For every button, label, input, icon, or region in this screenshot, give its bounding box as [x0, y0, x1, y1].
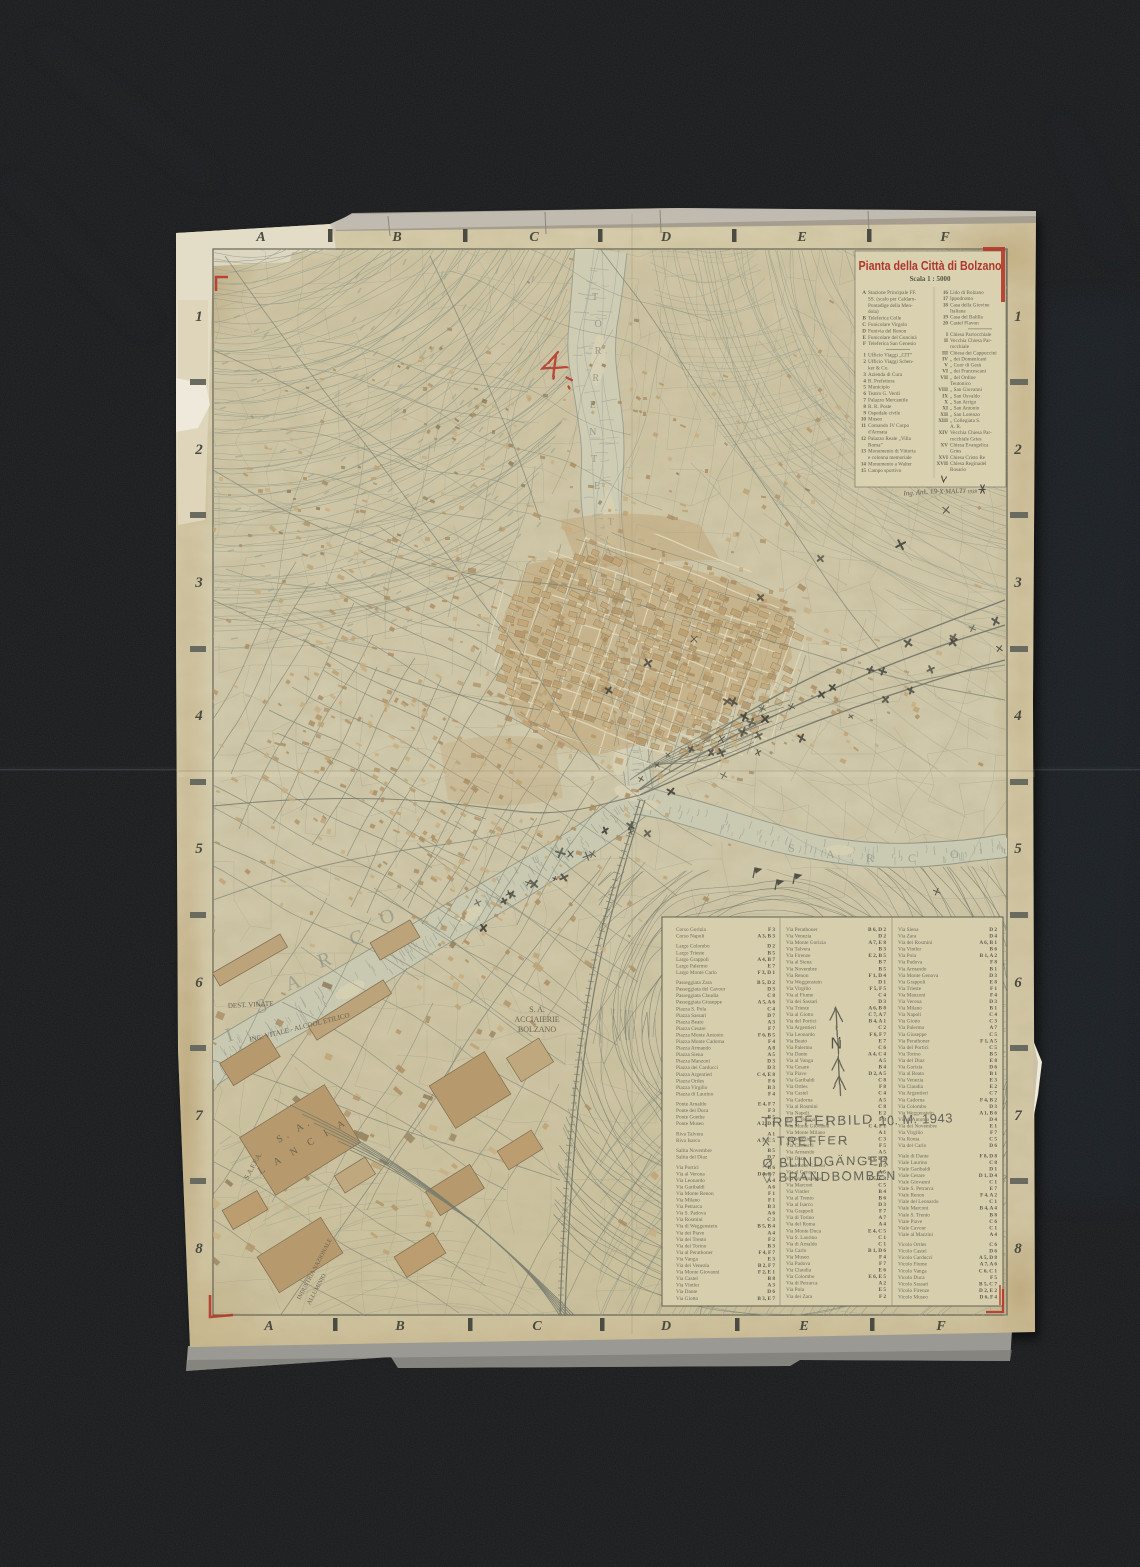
- svg-text:D 3: D 3: [878, 1202, 886, 1208]
- svg-text:Via Monte Renon: Via Monte Renon: [676, 1191, 714, 1197]
- svg-text:B: B: [391, 230, 401, 245]
- svg-text:XIV: XIV: [938, 430, 948, 436]
- svg-text:Via Trieste: Via Trieste: [898, 986, 922, 992]
- svg-text:C 3: C 3: [767, 1217, 775, 1223]
- svg-text:F 1: F 1: [768, 1191, 775, 1197]
- svg-text:F 2: F 2: [768, 1237, 775, 1243]
- svg-text:Via Vintler: Via Vintler: [898, 947, 921, 953]
- svg-text:Viale Laurino: Viale Laurino: [898, 1160, 928, 1166]
- svg-text:Piazza Monte Antonio: Piazza Monte Antonio: [676, 1033, 724, 1039]
- svg-text:D 4: D 4: [989, 1117, 997, 1123]
- svg-text:8: 8: [1014, 1241, 1022, 1257]
- svg-text:B 4, A 1: B 4, A 1: [869, 1019, 887, 1025]
- svg-text:10: 10: [861, 417, 867, 423]
- svg-text:C 4: C 4: [878, 993, 886, 999]
- svg-text:B 4: B 4: [878, 1065, 886, 1071]
- svg-text:Via al Perathoner: Via al Perathoner: [676, 1250, 713, 1256]
- svg-text:B 3: B 3: [878, 947, 886, 953]
- svg-text:Chiesa Evangelica: Chiesa Evangelica: [950, 443, 989, 449]
- svg-text:Via dei Piave: Via dei Piave: [676, 1230, 705, 1236]
- svg-text:Chiesa Parrocchiale: Chiesa Parrocchiale: [950, 332, 992, 338]
- svg-text:A 7, E 8: A 7, E 8: [868, 940, 886, 946]
- svg-text:„ dei Francescani: „ dei Francescani: [950, 369, 987, 375]
- svg-text:B 5: B 5: [767, 1148, 775, 1154]
- svg-text:Via dei Sassari: Via dei Sassari: [786, 999, 818, 1005]
- svg-text:F 3, D 1: F 3, D 1: [758, 970, 776, 976]
- svg-text:F 7: F 7: [879, 1261, 886, 1267]
- svg-text:Via Venezia: Via Venezia: [786, 934, 812, 940]
- svg-text:Via Torino: Via Torino: [898, 1051, 921, 1057]
- svg-text:F 1, A 5: F 1, A 5: [980, 1038, 997, 1044]
- svg-text:B: B: [863, 316, 867, 322]
- svg-text:„ San Lorenzo: „ San Lorenzo: [950, 412, 980, 418]
- svg-text:D 3: D 3: [767, 987, 775, 993]
- svg-text:E: E: [796, 230, 806, 245]
- svg-text:Via Argentieri: Via Argentieri: [898, 1091, 929, 1097]
- svg-text:Italiana: Italiana: [950, 308, 966, 314]
- svg-text:F 1: F 1: [768, 1198, 775, 1204]
- svg-text:Vicolo Museo: Vicolo Museo: [898, 1295, 928, 1301]
- svg-text:E 8: E 8: [989, 979, 997, 985]
- svg-text:B 7: B 7: [878, 960, 886, 966]
- svg-text:B: B: [394, 1319, 404, 1334]
- svg-text:1: 1: [1014, 309, 1022, 325]
- svg-text:A 6: A 6: [767, 1184, 775, 1190]
- svg-text:C 5: C 5: [878, 1182, 886, 1188]
- svg-text:Casa della Giovine: Casa della Giovine: [950, 302, 990, 308]
- svg-text:14: 14: [861, 462, 867, 468]
- svg-text:E 7: E 7: [767, 963, 775, 969]
- svg-text:Via di Petrarca: Via di Petrarca: [786, 1281, 818, 1287]
- svg-text:Via Rosmini: Via Rosmini: [676, 1217, 703, 1223]
- svg-text:Via Monte Genova: Via Monte Genova: [898, 973, 939, 979]
- svg-text:Via dei Trento: Via dei Trento: [676, 1237, 707, 1243]
- svg-text:T: T: [592, 292, 598, 303]
- svg-text:Piazza Virgilio: Piazza Virgilio: [676, 1085, 708, 1091]
- svg-text:Funicolare del Guncinà: Funicolare del Guncinà: [868, 335, 917, 341]
- svg-text:C 5: C 5: [989, 1032, 997, 1038]
- svg-text:9: 9: [863, 410, 866, 416]
- svg-text:Viale Cavour: Viale Cavour: [898, 1225, 926, 1231]
- svg-text:Via Grappoli: Via Grappoli: [786, 1209, 814, 1215]
- svg-text:D 1: D 1: [878, 979, 886, 985]
- svg-text:Palazzo Reale „Villa: Palazzo Reale „Villa: [868, 436, 912, 442]
- svg-text:F 4, A 2: F 4, A 2: [980, 1193, 997, 1199]
- svg-text:2: 2: [863, 359, 866, 365]
- svg-text:A: A: [255, 230, 265, 245]
- svg-text:E: E: [594, 481, 600, 492]
- svg-text:D 2, A 5: D 2, A 5: [868, 1071, 886, 1077]
- svg-text:E 6: E 6: [878, 1268, 886, 1274]
- svg-text:Via al Vanga: Via al Vanga: [786, 1058, 814, 1064]
- svg-text:F 7: F 7: [990, 1130, 997, 1136]
- svg-text:B 3, E 7: B 3, E 7: [757, 1296, 775, 1302]
- svg-text:Vicolo Sassari: Vicolo Sassari: [898, 1281, 929, 1287]
- svg-text:Viale al Mazzini: Viale al Mazzini: [898, 1232, 934, 1238]
- svg-text:Via Leonardo: Via Leonardo: [676, 1178, 705, 1184]
- svg-text:E 3: E 3: [767, 1257, 775, 1263]
- svg-text:T: T: [591, 454, 597, 465]
- svg-text:Piazza Beato: Piazza Beato: [676, 1019, 704, 1025]
- svg-text:Ponte Museo: Ponte Museo: [676, 1121, 704, 1127]
- svg-text:7: 7: [1014, 1108, 1022, 1124]
- svg-text:Via del Torino: Via del Torino: [676, 1243, 707, 1249]
- svg-text:B 6: B 6: [989, 947, 997, 953]
- svg-text:6: 6: [863, 391, 866, 397]
- svg-text:BOLZANO: BOLZANO: [518, 1025, 556, 1034]
- svg-text:B 2, F 7: B 2, F 7: [758, 1263, 776, 1269]
- svg-text:IV: IV: [942, 356, 948, 362]
- svg-text:II: II: [944, 338, 948, 344]
- svg-text:Via S. Padova: Via S. Padova: [676, 1211, 706, 1217]
- svg-text:R: R: [866, 851, 874, 865]
- svg-text:A 1, B 6: A 1, B 6: [979, 1110, 997, 1116]
- svg-text:B 1: B 1: [989, 1071, 997, 1077]
- svg-text:Via Leonardo: Via Leonardo: [786, 1032, 815, 1038]
- svg-text:Funicolare Virgolo: Funicolare Virgolo: [868, 322, 908, 328]
- svg-text:E 4, C 5: E 4, C 5: [868, 1228, 886, 1234]
- svg-text:A 6, B 8: A 6, B 8: [868, 1006, 886, 1012]
- svg-text:Vicolo Fiume: Vicolo Fiume: [898, 1262, 928, 1268]
- svg-text:Via Trieste: Via Trieste: [786, 1006, 810, 1012]
- svg-text:I: I: [946, 332, 948, 338]
- svg-text:Palazzo Mercantile: Palazzo Mercantile: [868, 398, 909, 404]
- svg-text:F 5, F 5: F 5, F 5: [869, 986, 886, 992]
- svg-text:Via Garibaldi: Via Garibaldi: [786, 1078, 815, 1084]
- svg-text:D: D: [862, 328, 866, 334]
- svg-text:Via del Diaz: Via del Diaz: [898, 1058, 925, 1064]
- svg-text:Viale S. Trento: Viale S. Trento: [898, 1212, 930, 1218]
- svg-text:III: III: [942, 350, 948, 356]
- svg-text:Via Beato: Via Beato: [786, 1038, 807, 1044]
- svg-text:Via Virgilio: Via Virgilio: [786, 986, 811, 992]
- svg-text:1: 1: [195, 309, 203, 325]
- svg-text:B 8: B 8: [767, 1276, 775, 1282]
- svg-text:E 2, B 5: E 2, B 5: [868, 953, 886, 959]
- svg-text:„ Cuor di Gesù: „ Cuor di Gesù: [950, 363, 982, 369]
- svg-text:6: 6: [195, 975, 203, 991]
- svg-text:C 1: C 1: [989, 1225, 997, 1231]
- svg-text:Via del Roma: Via del Roma: [786, 1222, 816, 1228]
- svg-text:Piazza Manzoni: Piazza Manzoni: [676, 1059, 711, 1065]
- svg-text:A 5: A 5: [767, 1052, 775, 1058]
- svg-text:C 5: C 5: [989, 1137, 997, 1143]
- svg-text:Largo Grappoli: Largo Grappoli: [676, 957, 709, 963]
- svg-text:C 3: C 3: [878, 1137, 886, 1143]
- svg-text:VIII: VIII: [938, 387, 948, 393]
- svg-text:Ufficio Viaggi „CIT”: Ufficio Viaggi „CIT”: [868, 352, 913, 359]
- svg-text:C 6: C 6: [989, 1219, 997, 1225]
- svg-text:B 4: B 4: [878, 1189, 886, 1195]
- svg-text:Largo Colombo: Largo Colombo: [676, 944, 710, 950]
- svg-text:Vicolo Ortles: Vicolo Ortles: [898, 1242, 926, 1248]
- svg-text:Via al Fiume: Via al Fiume: [786, 993, 814, 999]
- svg-text:S. A.: S. A.: [529, 1005, 545, 1014]
- svg-text:D: D: [660, 1319, 671, 1334]
- svg-text:Salita del Diaz: Salita del Diaz: [676, 1155, 708, 1161]
- svg-text:Via al Isarco: Via al Isarco: [786, 1202, 813, 1208]
- svg-text:D 1, D 4: D 1, D 4: [979, 1173, 998, 1179]
- svg-text:A 4: A 4: [767, 1230, 775, 1236]
- svg-text:C 7, A 7: C 7, A 7: [868, 1012, 886, 1018]
- svg-text:C: C: [529, 230, 539, 245]
- svg-text:C 1: C 1: [989, 1199, 997, 1205]
- svg-text:ker & Co.: ker & Co.: [868, 366, 889, 372]
- svg-text:Viale Garibaldi: Viale Garibaldi: [898, 1166, 931, 1172]
- svg-text:Monumento di Vittoria: Monumento di Vittoria: [868, 449, 916, 455]
- svg-text:Via Pola: Via Pola: [898, 953, 917, 959]
- svg-text:Via Manzoni: Via Manzoni: [898, 993, 926, 999]
- svg-text:Museo: Museo: [868, 417, 883, 423]
- svg-text:Via dei Zara: Via dei Zara: [786, 1294, 813, 1300]
- svg-text:D 6: D 6: [767, 1289, 775, 1295]
- svg-text:Via Museo: Via Museo: [786, 1255, 809, 1261]
- svg-text:C: C: [862, 322, 866, 328]
- svg-text:Viale Renon: Viale Renon: [898, 1193, 925, 1199]
- svg-text:D 3: D 3: [989, 1104, 997, 1110]
- svg-text:B 3: B 3: [767, 1085, 775, 1091]
- svg-text:„ San Antonio: „ San Antonio: [950, 406, 980, 412]
- svg-text:Via Vintler: Via Vintler: [786, 1189, 809, 1195]
- svg-text:E: E: [863, 335, 867, 341]
- svg-text:Viale Piave: Viale Piave: [898, 1219, 923, 1225]
- svg-text:B 5: B 5: [878, 966, 886, 972]
- svg-text:Largo Trieste: Largo Trieste: [676, 950, 705, 956]
- svg-text:Via Grappoli: Via Grappoli: [898, 979, 926, 985]
- svg-text:Vicolo Carducci: Vicolo Carducci: [898, 1255, 933, 1261]
- svg-text:R: R: [592, 373, 599, 384]
- svg-text:Via Giuseppe: Via Giuseppe: [898, 1032, 927, 1038]
- svg-text:Riva Isarco: Riva Isarco: [676, 1138, 701, 1144]
- svg-text:D: D: [660, 230, 671, 245]
- svg-text:6: 6: [1014, 975, 1022, 991]
- svg-text:A: A: [862, 290, 866, 296]
- svg-text:Ospedale civile: Ospedale civile: [868, 410, 901, 416]
- svg-text:Viale di Dante: Viale di Dante: [898, 1153, 929, 1159]
- svg-text:B 5: B 5: [767, 950, 775, 956]
- svg-text:Via Napoli: Via Napoli: [898, 1012, 922, 1018]
- svg-text:Ponte Goethe: Ponte Goethe: [676, 1115, 705, 1121]
- svg-text:Via del Portici: Via del Portici: [786, 1019, 817, 1025]
- svg-text:Via Piave: Via Piave: [786, 1071, 807, 1077]
- svg-text:C 2: C 2: [878, 1025, 886, 1031]
- svg-text:A 4, B 7: A 4, B 7: [757, 957, 775, 963]
- svg-text:XIII: XIII: [938, 418, 948, 424]
- svg-text:20: 20: [943, 321, 949, 327]
- svg-text:D 3: D 3: [989, 973, 997, 979]
- svg-text:E 1: E 1: [989, 1124, 997, 1130]
- svg-text:C 8: C 8: [989, 1160, 997, 1166]
- svg-text:D 2: D 2: [989, 927, 997, 933]
- svg-text:15: 15: [861, 468, 867, 474]
- svg-text:A 3, B 3: A 3, B 3: [757, 934, 775, 940]
- svg-text:B 5, C 7: B 5, C 7: [979, 1281, 997, 1287]
- svg-text:Ponte dei Duca: Ponte dei Duca: [676, 1108, 709, 1114]
- svg-text:B 1, D 6: B 1, D 6: [868, 1248, 886, 1254]
- svg-text:Via Claudia: Via Claudia: [898, 1084, 924, 1090]
- svg-text:Vicolo Firenze: Vicolo Firenze: [898, 1288, 930, 1294]
- svg-text:X: X: [944, 400, 948, 406]
- svg-text:F 4, F 7: F 4, F 7: [758, 1250, 775, 1256]
- svg-text:F: F: [939, 230, 950, 245]
- svg-text:Via del Carlo: Via del Carlo: [898, 1143, 927, 1149]
- svg-text:Via al Verona: Via al Verona: [676, 1171, 705, 1177]
- svg-text:Teleferica Colle: Teleferica Colle: [868, 315, 902, 322]
- svg-text:VII: VII: [940, 375, 948, 381]
- svg-text:D 6: D 6: [989, 1065, 997, 1071]
- svg-text:Monumento a Walter: Monumento a Walter: [868, 462, 912, 468]
- svg-text:Via Firenze: Via Firenze: [786, 953, 811, 959]
- svg-text:C 4: C 4: [767, 1006, 775, 1012]
- svg-text:8: 8: [195, 1241, 203, 1257]
- svg-text:E: E: [798, 1319, 808, 1334]
- svg-text:D 6: D 6: [989, 1249, 997, 1255]
- svg-text:„ del Ordine: „ del Ordine: [950, 375, 976, 381]
- svg-text:Azienda di Cura: Azienda di Cura: [868, 372, 903, 378]
- svg-text:Chiesa Reginadel: Chiesa Reginadel: [950, 461, 987, 467]
- svg-text:7: 7: [863, 398, 866, 404]
- svg-text:D 3: D 3: [878, 999, 886, 1005]
- svg-text:Piazza Armando: Piazza Armando: [676, 1046, 711, 1052]
- svg-text:A. R.: A. R.: [950, 424, 961, 430]
- svg-text:Via Colombo: Via Colombo: [786, 1274, 815, 1280]
- svg-text:XII: XII: [940, 412, 948, 418]
- svg-text:A 4: A 4: [989, 1232, 997, 1238]
- svg-text:Vicolo Vanga: Vicolo Vanga: [898, 1268, 927, 1274]
- svg-text:A 6, B 1: A 6, B 1: [979, 940, 997, 946]
- svg-text:N: N: [830, 1035, 842, 1052]
- svg-text:XI: XI: [942, 406, 948, 412]
- svg-text:D 2: D 2: [767, 944, 775, 950]
- svg-text:C 4: C 4: [989, 1012, 997, 1018]
- svg-text:B 1, A 2: B 1, A 2: [980, 953, 998, 959]
- svg-text:Castel Flavon: Castel Flavon: [950, 321, 979, 327]
- svg-text:Via Monte Giovanni: Via Monte Giovanni: [676, 1270, 720, 1276]
- svg-text:F 8: F 8: [879, 1084, 886, 1090]
- svg-text:Stazione Principale FF.: Stazione Principale FF.: [868, 290, 916, 296]
- svg-text:Lido di Bolzano: Lido di Bolzano: [950, 290, 984, 296]
- svg-text:Via Padova: Via Padova: [898, 960, 923, 966]
- svg-text:Via Argentieri: Via Argentieri: [786, 1025, 817, 1031]
- svg-text:▽ BRANDBOMBEN: ▽ BRANDBOMBEN: [762, 1168, 897, 1185]
- svg-text:SS. (scalo per Caldaro-: SS. (scalo per Caldaro-: [868, 295, 916, 302]
- svg-text:Largo Palermo: Largo Palermo: [676, 963, 708, 969]
- svg-text:C 8: C 8: [878, 1104, 886, 1110]
- svg-text:Chiesa Cristo Re: Chiesa Cristo Re: [950, 455, 986, 461]
- svg-text:Via Armando: Via Armando: [898, 966, 927, 972]
- svg-text:Via Milano: Via Milano: [898, 1006, 922, 1012]
- svg-text:Largo Monte Carlo: Largo Monte Carlo: [676, 970, 717, 976]
- svg-text:C 7: C 7: [989, 1091, 997, 1097]
- svg-text:R: R: [595, 346, 602, 357]
- svg-text:Passeggiata del Cavour: Passeggiata del Cavour: [676, 987, 726, 993]
- svg-text:E 4, F 7: E 4, F 7: [758, 1102, 776, 1108]
- svg-text:Via Renon: Via Renon: [786, 973, 809, 979]
- svg-text:A 6: A 6: [767, 1211, 775, 1217]
- svg-text:d'Armata: d'Armata: [868, 430, 888, 436]
- svg-text:Pontadige della Men-: Pontadige della Men-: [868, 303, 913, 309]
- svg-text:C 8: C 8: [878, 1078, 886, 1084]
- svg-text:N: N: [589, 427, 596, 438]
- svg-text:B 3: B 3: [767, 1204, 775, 1210]
- svg-text:E 8: E 8: [989, 1058, 997, 1064]
- svg-text:5: 5: [195, 841, 203, 857]
- svg-text:B 3: B 3: [767, 1243, 775, 1249]
- svg-text:Campo sportivo: Campo sportivo: [868, 468, 902, 474]
- svg-text:Via Venezia: Via Venezia: [898, 1078, 924, 1084]
- svg-text:Riva Talvera: Riva Talvera: [676, 1131, 704, 1137]
- svg-text:F 6, F 7: F 6, F 7: [869, 1032, 886, 1038]
- svg-text:E 2: E 2: [989, 1084, 997, 1090]
- svg-text:Ufficio Viaggi Schen-: Ufficio Viaggi Schen-: [868, 358, 914, 365]
- svg-text:F 5: F 5: [990, 1275, 997, 1281]
- svg-text:Via al Trento: Via al Trento: [786, 1196, 814, 1202]
- svg-text:Teutonico: Teutonico: [950, 381, 971, 387]
- svg-text:A 7: A 7: [989, 1025, 997, 1031]
- svg-text:Via al Rosmini: Via al Rosmini: [786, 1104, 818, 1110]
- svg-text:A 7, A 6: A 7, A 6: [980, 1262, 998, 1268]
- svg-text:C 1: C 1: [989, 1180, 997, 1186]
- svg-text:19: 19: [943, 315, 949, 321]
- svg-text:F 2, E 1: F 2, E 1: [758, 1270, 776, 1276]
- svg-text:Via Carlo: Via Carlo: [786, 1248, 807, 1254]
- svg-text:B 5, B 4: B 5, B 4: [757, 1224, 775, 1230]
- svg-text:5: 5: [1014, 841, 1022, 857]
- svg-text:VI: VI: [942, 369, 948, 375]
- svg-text:Via dei Rosmini: Via dei Rosmini: [898, 940, 933, 946]
- svg-text:Passeggiata Zara: Passeggiata Zara: [676, 980, 712, 986]
- svg-text:Via al Giotto: Via al Giotto: [786, 1012, 814, 1018]
- svg-text:Via di Weggenstein: Via di Weggenstein: [676, 1224, 718, 1230]
- svg-text:C 4, E 8: C 4, E 8: [757, 1072, 775, 1078]
- svg-text:C 3: C 3: [989, 1019, 997, 1025]
- svg-text:Piazza Ortles: Piazza Ortles: [676, 1078, 704, 1084]
- svg-text:Via S. Laurino: Via S. Laurino: [786, 1235, 817, 1241]
- svg-text:Via Giotto: Via Giotto: [676, 1296, 699, 1302]
- svg-text:E 7: E 7: [878, 1038, 886, 1044]
- svg-text:C 5: C 5: [989, 1045, 997, 1051]
- svg-text:Via Castel: Via Castel: [676, 1276, 698, 1282]
- svg-text:S: S: [788, 841, 795, 855]
- svg-text:Roma”: Roma”: [868, 442, 883, 448]
- svg-text:A 5: A 5: [878, 1058, 886, 1064]
- svg-text:Via al Siena: Via al Siena: [786, 960, 812, 966]
- svg-text:X TREFFER: X TREFFER: [762, 1133, 849, 1149]
- svg-text:R. Prefettura: R. Prefettura: [868, 377, 895, 384]
- svg-text:Municipio: Municipio: [868, 385, 890, 391]
- svg-text:B 6: B 6: [878, 1196, 886, 1202]
- svg-text:A 5: A 5: [878, 1097, 886, 1103]
- svg-text:Via Roma: Via Roma: [898, 1137, 920, 1143]
- svg-text:F 3: F 3: [768, 927, 775, 933]
- svg-text:XVII: XVII: [936, 461, 948, 467]
- svg-text:XVI: XVI: [938, 455, 948, 461]
- svg-text:Via Novembre: Via Novembre: [786, 966, 818, 972]
- svg-text:A 2: A 2: [878, 1281, 886, 1287]
- svg-text:E 5: E 5: [878, 1287, 886, 1293]
- svg-text:A 7: A 7: [878, 1215, 886, 1221]
- svg-text:1: 1: [863, 353, 866, 359]
- svg-text:Via Monte Gorizia: Via Monte Gorizia: [786, 940, 826, 946]
- svg-text:Via Vintler: Via Vintler: [676, 1283, 699, 1289]
- svg-text:Teleferica San Genesio: Teleferica San Genesio: [868, 340, 916, 347]
- svg-text:C 1: C 1: [878, 1241, 886, 1247]
- svg-text:Via Garibaldi: Via Garibaldi: [676, 1184, 705, 1190]
- svg-text:rocchiale: rocchiale: [950, 344, 970, 350]
- svg-text:ACCIAIERIE: ACCIAIERIE: [514, 1015, 559, 1024]
- svg-text:Via Cadorna: Via Cadorna: [898, 1097, 925, 1103]
- svg-text:D 6, F 4: D 6, F 4: [980, 1295, 998, 1301]
